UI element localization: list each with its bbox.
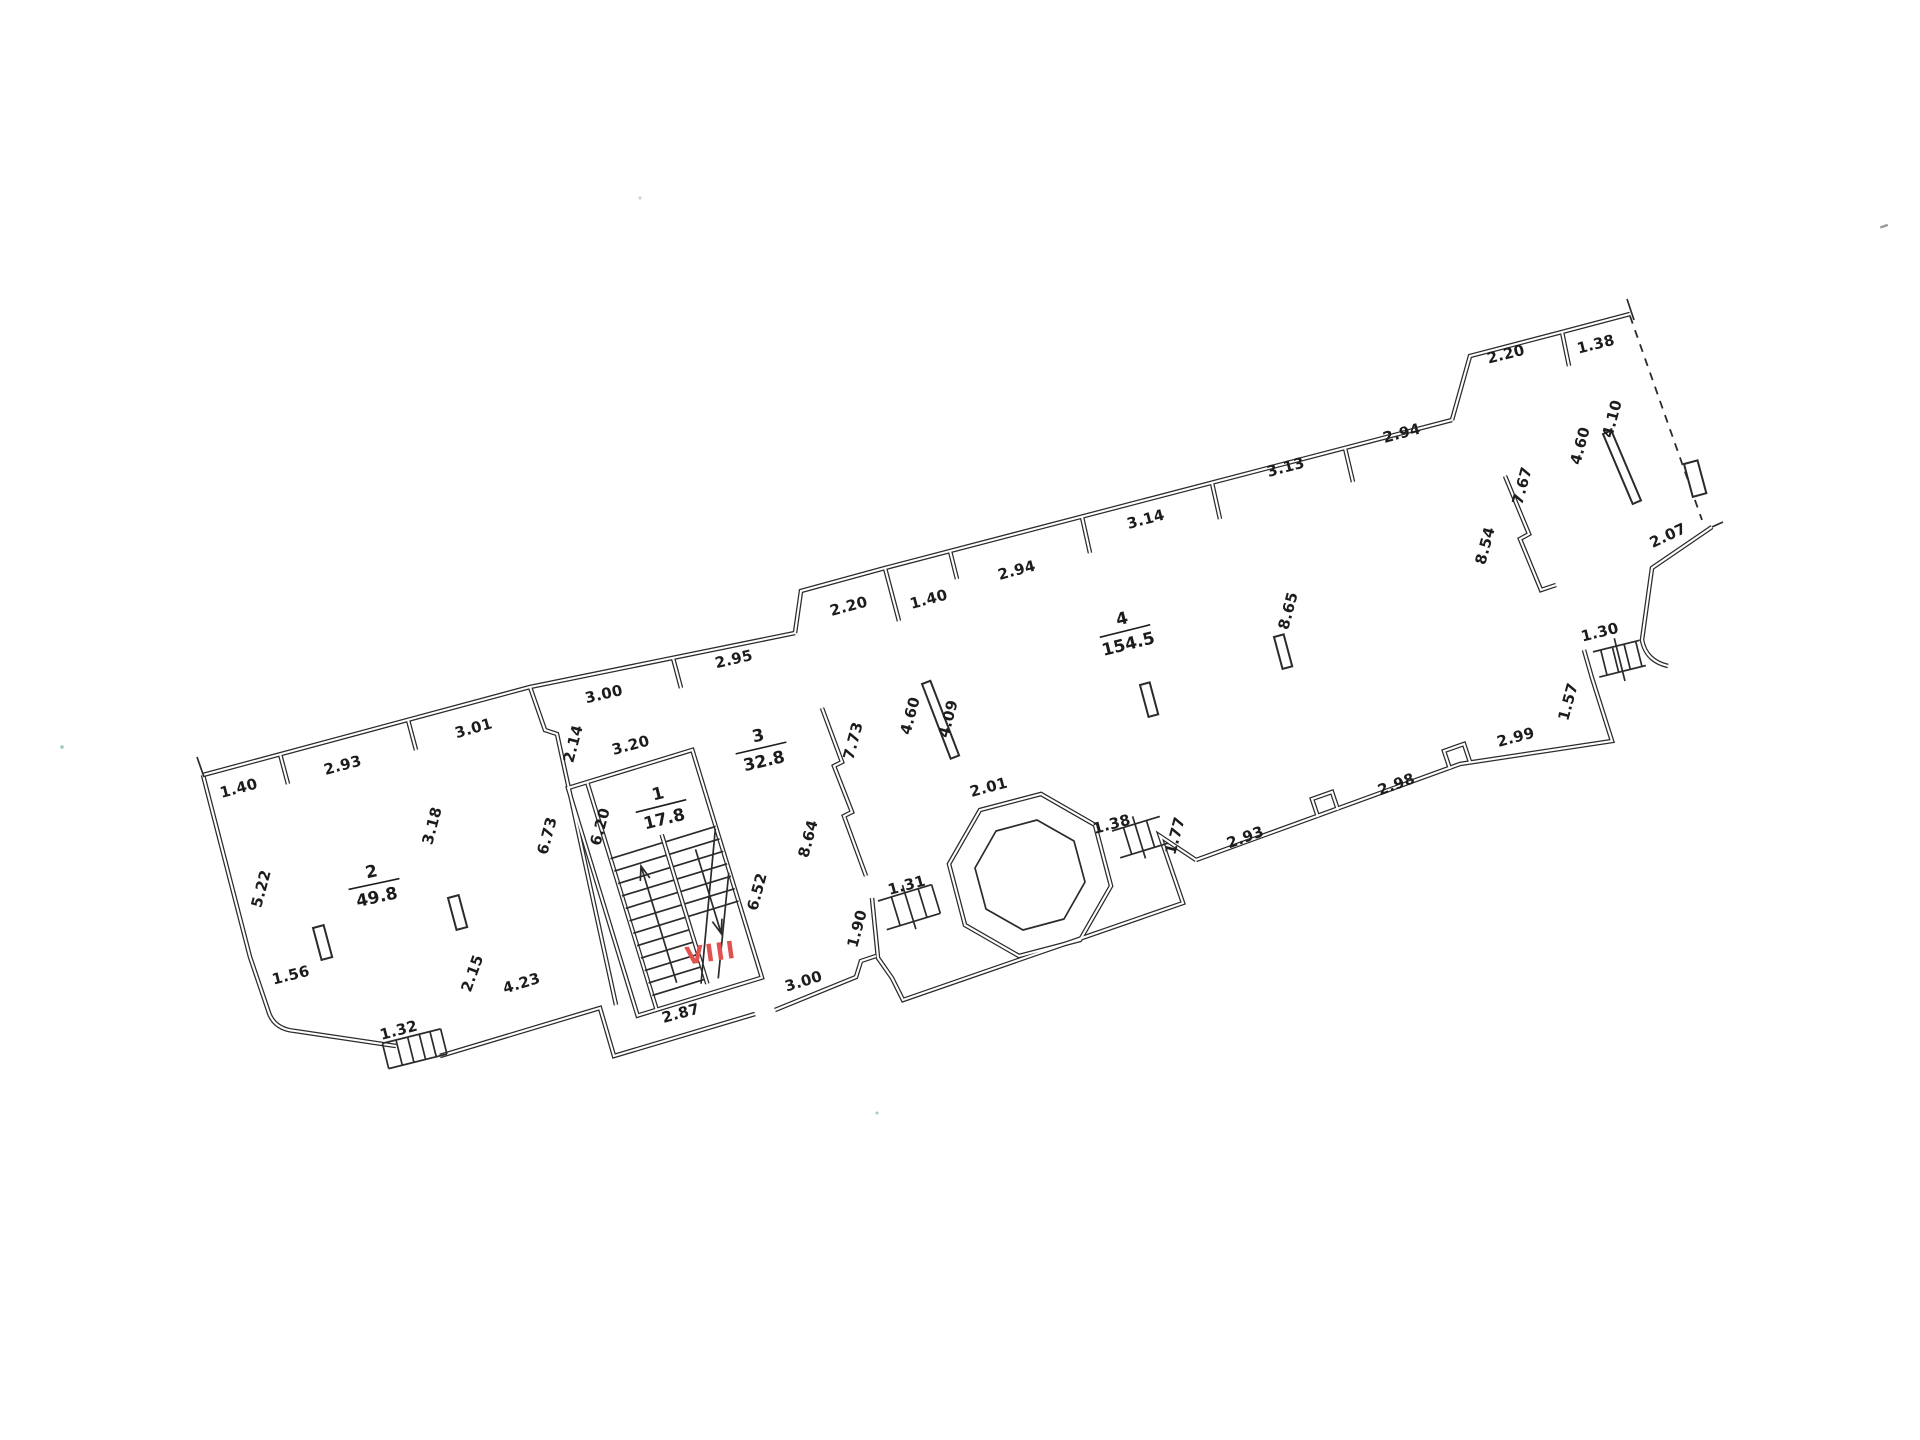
dimension-label: 3.20 [610, 732, 652, 759]
dimension-label: 2.93 [322, 752, 364, 779]
dimension-label: 4.10 [1599, 398, 1626, 440]
dimension-label: 2.87 [660, 1000, 702, 1027]
dimension-label: 2.93 [1224, 822, 1266, 852]
dimension-label: 1.31 [886, 872, 928, 899]
column-on-dashed-line [1684, 460, 1706, 496]
dimension-label: 8.64 [795, 818, 822, 860]
dimension-label: 1.57 [1555, 681, 1582, 723]
bottom-wall-left [440, 1008, 755, 1056]
dimension-label: 2.94 [1381, 420, 1423, 447]
dimension-label: 2.20 [828, 593, 870, 620]
dimension-label: 7.67 [1509, 465, 1536, 507]
dimension-label: 3.18 [419, 805, 446, 847]
dimension-labels-layer: 1.402.933.013.002.952.201.402.943.143.13… [218, 331, 1689, 1044]
walls-core-layer [203, 314, 1712, 1056]
unit-number-label: VIII [684, 936, 739, 971]
octagon-shaft-inner [975, 820, 1085, 930]
column [313, 925, 332, 960]
dimension-label: 1.90 [844, 908, 871, 950]
dimension-label: 8.65 [1275, 590, 1302, 632]
dimension-label: 2.15 [457, 952, 487, 994]
left-wall [203, 775, 396, 1046]
partition-wall [1603, 430, 1641, 503]
detail-lines-layer [197, 299, 1723, 1069]
scanned-floorplan-page: { "plan": { "type": "floor-plan", "line_… [0, 0, 1920, 1440]
dimension-label: 2.14 [560, 723, 587, 765]
dimension-label: 5.22 [248, 868, 275, 910]
floor-plan-drawing: 249.8117.8332.84154.5 1.402.933.013.002.… [0, 0, 1920, 1440]
bay-outline [872, 836, 1196, 1000]
room-number: 1 [650, 783, 666, 805]
columns-layer [313, 430, 1706, 959]
room-number: 3 [750, 725, 766, 747]
dimension-label: 2.01 [968, 774, 1010, 801]
room-label: 249.8 [344, 857, 404, 913]
column [1140, 682, 1158, 716]
dimension-label: 4.23 [501, 969, 543, 997]
dimension-label: 2.94 [996, 557, 1038, 584]
dimension-label: 2.99 [1495, 724, 1537, 751]
dimension-label: 2.20 [1485, 341, 1526, 368]
octagon-shaft-outer [949, 794, 1111, 956]
room-number: 2 [364, 861, 380, 883]
walls-layer [203, 314, 1712, 1056]
dimension-label: 2.98 [1375, 769, 1417, 799]
column [448, 895, 467, 930]
dimension-label: 1.38 [1575, 331, 1616, 358]
stair-down-arrow [691, 848, 726, 935]
dimension-label: 3.13 [1265, 454, 1307, 481]
dimension-label: 6.73 [534, 815, 561, 857]
dimension-label: 3.14 [1125, 506, 1167, 533]
dimension-label: 4.60 [1567, 425, 1594, 467]
dimension-label: 6.20 [587, 806, 614, 848]
room-number: 4 [1114, 608, 1130, 630]
room-label: 332.8 [731, 721, 792, 778]
room-area: 49.8 [354, 884, 399, 912]
dimension-label: 3.01 [453, 714, 495, 742]
dimension-label: 1.56 [270, 962, 311, 989]
dimension-label: 7.73 [840, 720, 867, 762]
dimension-label: 1.40 [908, 586, 950, 613]
dimension-label: 4.60 [897, 695, 924, 737]
room-label: 4154.5 [1094, 603, 1157, 661]
room-label: 117.8 [630, 778, 692, 835]
room-area: 154.5 [1100, 628, 1157, 660]
dimension-label: 1.40 [218, 775, 260, 802]
top-wall-right [1452, 314, 1630, 420]
dimension-label: 8.54 [1472, 525, 1499, 567]
dimension-label: 3.00 [583, 681, 624, 707]
dimension-label: 6.52 [744, 871, 771, 913]
top-wall-left [203, 633, 795, 775]
column [1274, 634, 1292, 668]
